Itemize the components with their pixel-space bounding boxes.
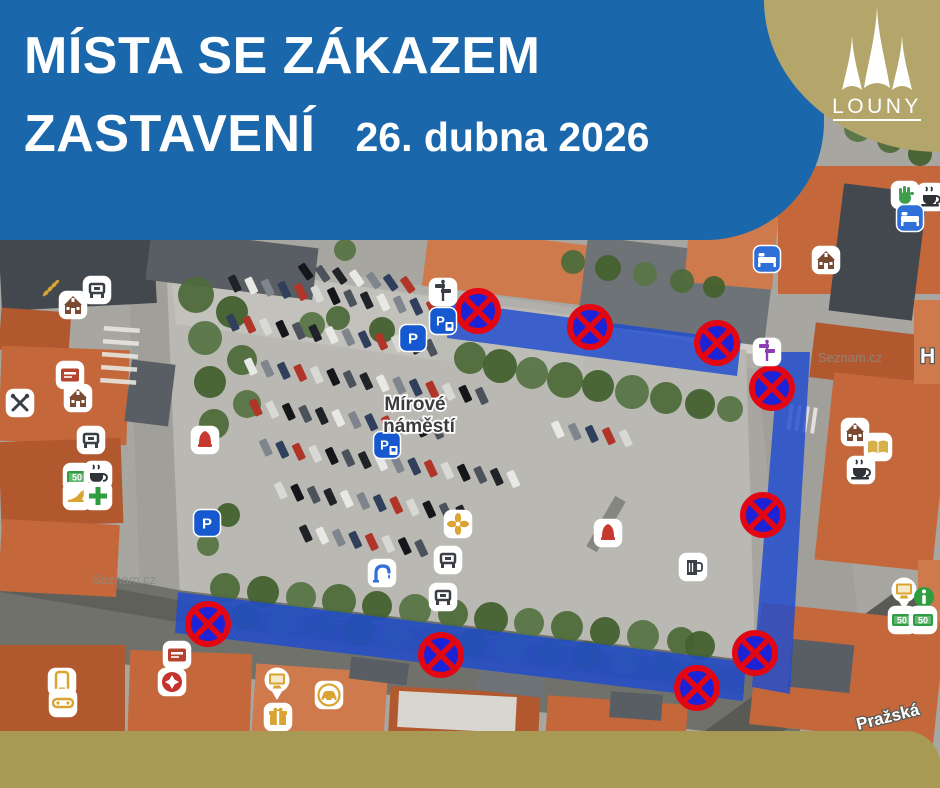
poi-bell-icon: [595, 520, 622, 547]
no-stopping-sign-icon: [743, 495, 783, 535]
building-roof: [814, 372, 940, 571]
title-block: MÍSTA SE ZÁKAZEM ZASTAVENÍ 26. dubna 202…: [24, 30, 649, 164]
no-stopping-sign-icon: [458, 291, 498, 331]
poi-carb-icon: [316, 682, 343, 709]
no-stopping-sign-icon: [697, 323, 737, 363]
tree: [717, 396, 743, 422]
no-stopping-sign-icon: [677, 668, 717, 708]
event-date: 26. dubna 2026: [355, 114, 649, 161]
building-roof: [397, 691, 517, 733]
louny-logo: LOUNY: [764, 0, 940, 140]
logo-spire-left: [842, 36, 862, 90]
poi-card-glyph: [61, 369, 79, 382]
poi-pauto-icon: [430, 308, 457, 335]
tree: [685, 389, 715, 419]
poi-house-icon: [60, 292, 87, 319]
poi-pharm-icon: [85, 483, 112, 510]
building-roof: [788, 639, 855, 693]
footer-bar: [0, 731, 940, 788]
no-stopping-sign-icon: [570, 307, 610, 347]
map-watermark: Seznam.cz: [818, 350, 882, 365]
poi-p-icon: [194, 510, 221, 537]
building-roof: [914, 300, 940, 384]
poi-post-icon: [430, 279, 457, 306]
tree: [334, 239, 356, 261]
no-stopping-sign-icon: [752, 368, 792, 408]
poi-utns-icon: [7, 390, 34, 417]
tree: [595, 255, 621, 281]
poi-background: [369, 560, 396, 587]
poi-flower-icon: [445, 511, 472, 538]
poi-house-icon: [813, 247, 840, 274]
poi-post-icon: [754, 339, 781, 366]
tree: [188, 321, 222, 355]
no-stopping-sign-icon: [421, 635, 461, 675]
logo-spire-right: [892, 36, 912, 90]
poi-redcross-glyph: [162, 672, 182, 692]
poi-info-glyph: [914, 587, 934, 607]
tree: [483, 349, 517, 383]
tree: [590, 617, 620, 647]
title-banner: MÍSTA SE ZÁKAZEM ZASTAVENÍ 26. dubna 202…: [0, 0, 824, 240]
poi-fount-icon: [369, 560, 396, 587]
map-watermark: Seznam.cz: [92, 572, 156, 587]
poi-house-icon: [65, 385, 92, 412]
tree: [326, 306, 350, 330]
poi-money-glyph: [913, 614, 933, 626]
page-title-line2: ZASTAVENÍ: [24, 104, 315, 164]
logo-spire-center: [864, 6, 890, 88]
poi-money-icon: [910, 607, 937, 634]
tree: [514, 608, 544, 638]
tree: [633, 262, 657, 286]
tree: [703, 276, 725, 298]
poi-bench-icon: [84, 277, 111, 304]
tree: [454, 342, 486, 374]
tree: [650, 382, 682, 414]
tree: [197, 534, 219, 556]
poi-p-glyph: [408, 331, 418, 348]
no-stopping-sign-icon: [735, 633, 775, 673]
poi-gift-icon: [265, 704, 292, 731]
tree: [627, 620, 659, 652]
poi-card-glyph: [168, 649, 186, 662]
poi-p-icon: [400, 325, 427, 352]
poi-bench-icon: [78, 427, 105, 454]
tree: [551, 611, 583, 643]
tree: [670, 269, 694, 293]
tree: [582, 370, 614, 402]
logo-city-name: LOUNY: [832, 95, 922, 118]
poi-book-glyph: [868, 441, 888, 454]
poi-bench-icon: [430, 584, 457, 611]
page-title-line1: MÍSTA SE ZÁKAZEM: [24, 30, 649, 82]
tree: [615, 375, 649, 409]
logo-corner: LOUNY: [764, 0, 940, 152]
poi-mug-icon: [680, 554, 707, 581]
poi-ctrl-icon: [50, 690, 77, 717]
poi-bench-icon: [435, 547, 462, 574]
poi-bell-icon: [192, 427, 219, 454]
square-name-line1: Mírové: [384, 394, 445, 415]
poi-card-icon: [164, 642, 191, 669]
tree: [547, 362, 583, 398]
square-name-line2: náměstí: [383, 416, 456, 437]
poi-info-icon: [914, 587, 934, 607]
poi-bed-icon: [897, 205, 924, 232]
poi-cup-icon: [848, 457, 875, 484]
logo-underline: [833, 119, 921, 121]
no-stopping-sign-icon: [188, 604, 228, 644]
poi-p-glyph: [202, 516, 212, 533]
tree: [516, 357, 548, 389]
tree: [178, 277, 214, 313]
tree: [561, 250, 585, 274]
street-label-right: H: [920, 345, 935, 368]
poi-bed-icon: [754, 246, 781, 273]
tree: [194, 366, 226, 398]
building-roof: [609, 691, 663, 721]
poi-redcross-icon: [159, 669, 186, 696]
